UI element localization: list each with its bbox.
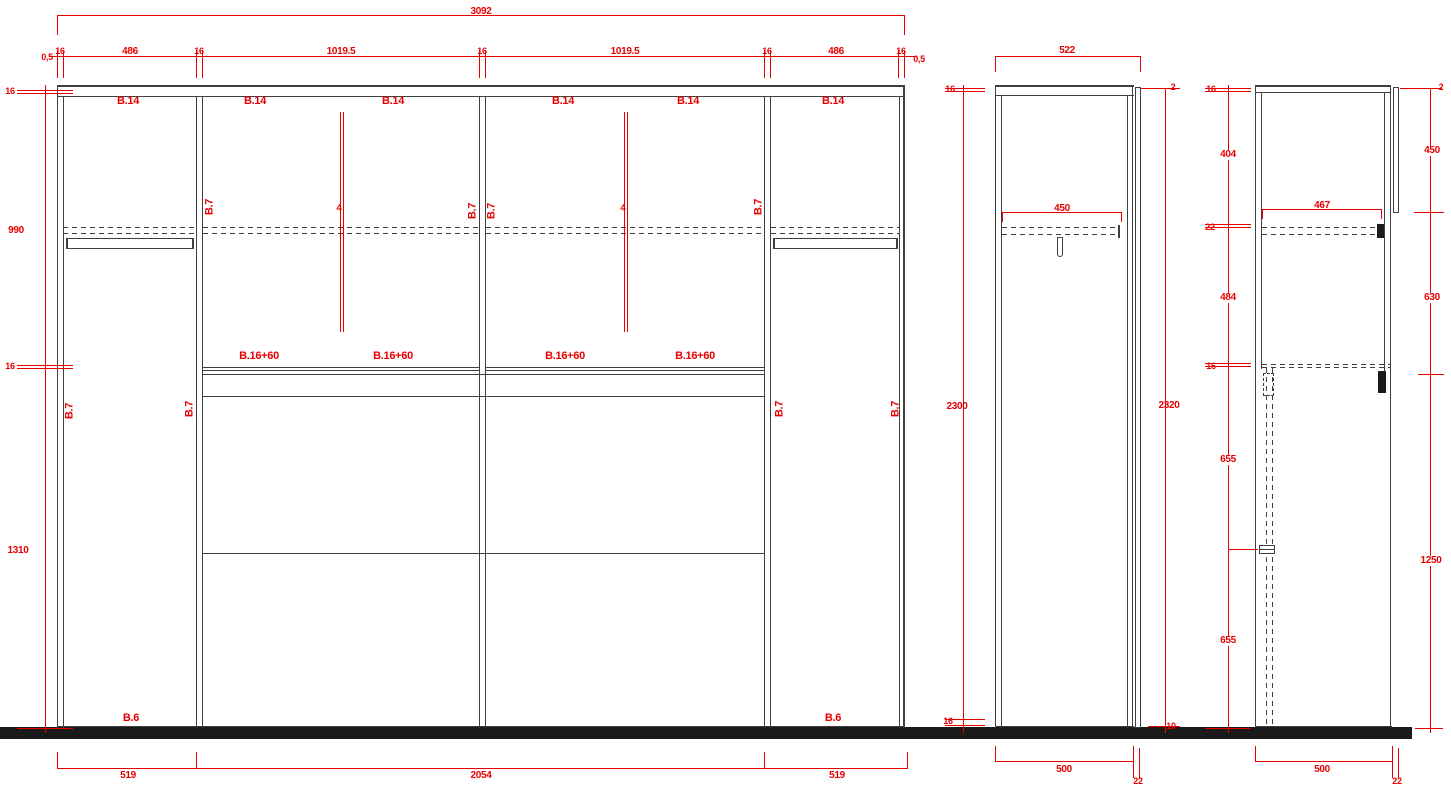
dim-width-seg: 16	[896, 47, 905, 56]
part-label-b7: B.7	[468, 203, 479, 219]
dim-line-mid-bottom	[995, 761, 1134, 762]
front-dashed-shelf	[486, 233, 764, 234]
dim-ext	[1381, 209, 1382, 219]
dim-ext	[57, 15, 58, 35]
dim-mid-left: 16	[945, 85, 954, 94]
dim-width-seg: 1019.5	[611, 47, 640, 57]
dim-ext	[995, 746, 996, 761]
left-hanging-rail	[66, 248, 194, 249]
right-bottom-edge	[1255, 726, 1392, 727]
right-dashed-shelf	[1262, 234, 1380, 235]
mid-left-edge	[995, 85, 996, 728]
front-bottom-edge	[57, 726, 905, 727]
right-shelf-bracket	[1377, 224, 1384, 238]
mid-back-panel	[1135, 87, 1141, 728]
dim-mid-left: 2300	[946, 402, 967, 412]
dim-tick	[17, 93, 73, 94]
part-label-b7: B.7	[487, 203, 498, 219]
dim-mid-right: 2	[1171, 83, 1176, 92]
dim-line-width-row	[50, 56, 917, 57]
floor-line	[0, 727, 1412, 739]
dim-width-seg: 0,5	[913, 55, 925, 64]
front-partition	[479, 96, 480, 728]
dim-ext	[1002, 212, 1003, 222]
dim-height-seg: 990	[8, 226, 24, 236]
dim-bottom-seg: 519	[829, 771, 845, 781]
front-upper-cabinet-bottom	[203, 370, 480, 371]
dim-width-seg: 0,5	[41, 53, 53, 62]
mid-right-edge	[1132, 85, 1133, 728]
dim-ext	[1392, 748, 1393, 778]
part-label-b7: B.7	[891, 401, 902, 417]
part-label-b7: B.7	[65, 403, 76, 419]
right-left-edge	[1255, 85, 1256, 728]
dim-ext	[57, 752, 58, 768]
dim-mid-shelf-depth: 450	[1054, 204, 1070, 214]
dim-line-mid-top-width	[995, 56, 1141, 57]
part-label-b7: B.7	[205, 199, 216, 215]
front-partition	[485, 96, 486, 728]
dim-tick	[1414, 212, 1444, 213]
center-line-label: 4	[336, 204, 341, 214]
right-right-edge-inner	[1384, 92, 1385, 375]
dim-tick	[1415, 728, 1443, 729]
front-dashed-shelf	[486, 227, 764, 228]
dim-ext	[1398, 748, 1399, 778]
dim-mid-right: 2320	[1158, 401, 1179, 411]
dim-ext	[196, 752, 197, 768]
dim-width-seg: 16	[55, 47, 64, 56]
dim-line-right-right-chain	[1430, 88, 1431, 733]
dim-bottom-seg: 2054	[470, 771, 491, 781]
dim-tick	[17, 90, 73, 91]
dim-right-right: 450	[1423, 146, 1441, 156]
front-dashed-shelf	[203, 233, 479, 234]
mid-shelf-bracket	[1118, 225, 1120, 238]
part-label-b16: B.16+60	[675, 351, 715, 362]
left-hanging-rail-cap	[192, 238, 194, 249]
mid-dashed-shelf	[1002, 227, 1119, 228]
front-center-mechanism-line	[627, 112, 628, 332]
dim-ext	[1255, 746, 1256, 761]
front-dashed-shelf	[203, 227, 479, 228]
right-dashed-shelf	[1262, 227, 1380, 228]
right-hanging-rail-cap	[896, 238, 898, 249]
dim-right-bottom: 500	[1314, 765, 1330, 775]
dim-right-right: 2	[1439, 83, 1444, 92]
dim-width-seg: 486	[122, 47, 138, 57]
dim-right-right: 630	[1423, 293, 1441, 303]
right-top-panel-edge	[1255, 85, 1391, 87]
dim-width-seg: 486	[828, 47, 844, 57]
front-bed-panel-split	[203, 553, 765, 554]
mid-top-panel-edge	[995, 85, 1134, 87]
dim-line-front-left-chain	[45, 85, 46, 733]
dim-line-front-bottom	[57, 768, 908, 769]
right-dashed-bottom-shelf	[1262, 364, 1390, 365]
front-bed-box-top-rail	[203, 374, 765, 375]
cad-drawing-canvas: 3092 0,5 16 486 16 1019.5 16 1019.5 16 4…	[0, 0, 1451, 799]
front-dashed-shelf	[63, 227, 196, 228]
front-upper-cabinet-bottom	[203, 367, 480, 368]
front-dashed-shelf	[771, 233, 899, 234]
front-dashed-shelf	[63, 233, 196, 234]
dim-line-right-bottom	[1255, 761, 1393, 762]
front-partition	[770, 96, 771, 728]
mid-top-panel-edge	[995, 95, 1134, 96]
front-top-panel-edge	[57, 96, 905, 97]
dim-right-left: 404	[1219, 150, 1237, 160]
dim-right-left: 655	[1219, 455, 1237, 465]
dim-mid-top-width: 522	[1059, 46, 1075, 56]
front-bed-box-rail-bottom	[203, 396, 765, 397]
right-back-panel	[1393, 87, 1399, 213]
dim-right-left: 655	[1219, 636, 1237, 646]
part-label-b14: B.14	[244, 96, 266, 107]
mid-rail-hanger	[1057, 237, 1063, 257]
dim-width-seg: 16	[194, 47, 203, 56]
part-label-b14: B.14	[117, 96, 139, 107]
right-hanging-rail-cap	[773, 238, 775, 249]
dim-height-seg: 16	[5, 87, 14, 96]
part-label-b14: B.14	[822, 96, 844, 107]
front-center-mechanism-line	[340, 112, 341, 332]
front-center-mechanism-line	[624, 112, 625, 332]
dim-mid-bottom: 22	[1133, 777, 1142, 786]
dim-mid-left: 16	[943, 717, 952, 726]
dim-bottom-seg: 519	[120, 771, 136, 781]
part-label-b14: B.14	[677, 96, 699, 107]
dim-width-seg: 16	[477, 47, 486, 56]
dim-ext	[907, 752, 908, 768]
dim-ext	[1140, 56, 1141, 72]
dim-mid-right: 10	[1166, 722, 1175, 731]
dim-ext	[995, 56, 996, 72]
dim-ext	[1139, 748, 1140, 778]
dim-ext	[904, 15, 905, 35]
right-lock-fitting	[1378, 371, 1386, 393]
dim-tick	[17, 728, 73, 729]
dim-height-seg: 16	[5, 362, 14, 371]
dim-width-seg: 16	[762, 47, 771, 56]
center-line-label: 4	[620, 204, 625, 214]
dim-tick	[1205, 728, 1251, 729]
right-left-edge-inner	[1261, 92, 1262, 369]
dim-right-left: 484	[1219, 293, 1237, 303]
part-label-b14: B.14	[382, 96, 404, 107]
dim-right-right: 1250	[1419, 556, 1442, 566]
dim-tick	[17, 368, 73, 369]
part-label-b16: B.16+60	[239, 351, 279, 362]
front-upper-cabinet-bottom	[486, 370, 765, 371]
left-hanging-rail	[66, 238, 194, 239]
front-right-side-panel	[903, 85, 905, 728]
dim-tick	[1228, 549, 1258, 550]
right-hanging-rail	[773, 248, 898, 249]
dim-tick	[1400, 88, 1442, 89]
right-hinge-h-marker	[1259, 549, 1275, 550]
dim-right-left: 22	[1205, 223, 1214, 232]
right-top-panel-edge	[1255, 92, 1391, 93]
mid-right-edge	[1127, 95, 1128, 728]
front-partition	[202, 96, 203, 728]
part-label-b7: B.7	[754, 199, 765, 215]
front-left-side-panel	[57, 85, 58, 728]
mid-left-edge	[1001, 95, 1002, 728]
front-partition	[196, 96, 197, 728]
dim-ext	[1133, 748, 1134, 778]
dim-ext	[764, 752, 765, 768]
dim-right-bottom: 22	[1392, 777, 1401, 786]
left-hanging-rail-cap	[66, 238, 68, 249]
dim-right-left: 16	[1206, 85, 1215, 94]
front-dashed-shelf	[771, 227, 899, 228]
dim-right-left: 16	[1206, 362, 1215, 371]
front-partition	[764, 96, 765, 728]
dim-overall-width: 3092	[470, 7, 491, 17]
dim-height-seg: 1310	[7, 546, 28, 556]
front-center-mechanism-line	[343, 112, 344, 332]
mid-dashed-shelf	[1002, 234, 1119, 235]
dim-width-seg: 1019.5	[327, 47, 356, 57]
front-top-panel-edge	[57, 85, 905, 87]
right-hanging-rail	[773, 238, 898, 239]
dim-tick	[1418, 374, 1444, 375]
dim-ext	[1121, 212, 1122, 222]
dim-tick	[17, 365, 73, 366]
part-label-b7: B.7	[775, 401, 786, 417]
front-upper-cabinet-bottom	[486, 367, 765, 368]
dim-mid-bottom: 500	[1056, 765, 1072, 775]
part-label-b16: B.16+60	[545, 351, 585, 362]
dim-ext	[1262, 209, 1263, 219]
part-label-b6: B.6	[123, 713, 139, 724]
part-label-b7: B.7	[185, 401, 196, 417]
right-dashed-bottom-shelf	[1262, 367, 1390, 368]
part-label-b14: B.14	[552, 96, 574, 107]
part-label-b16: B.16+60	[373, 351, 413, 362]
right-right-edge	[1390, 85, 1391, 728]
mid-bottom-edge	[995, 726, 1134, 727]
part-label-b6: B.6	[825, 713, 841, 724]
dim-right-shelf-depth: 467	[1314, 201, 1330, 211]
